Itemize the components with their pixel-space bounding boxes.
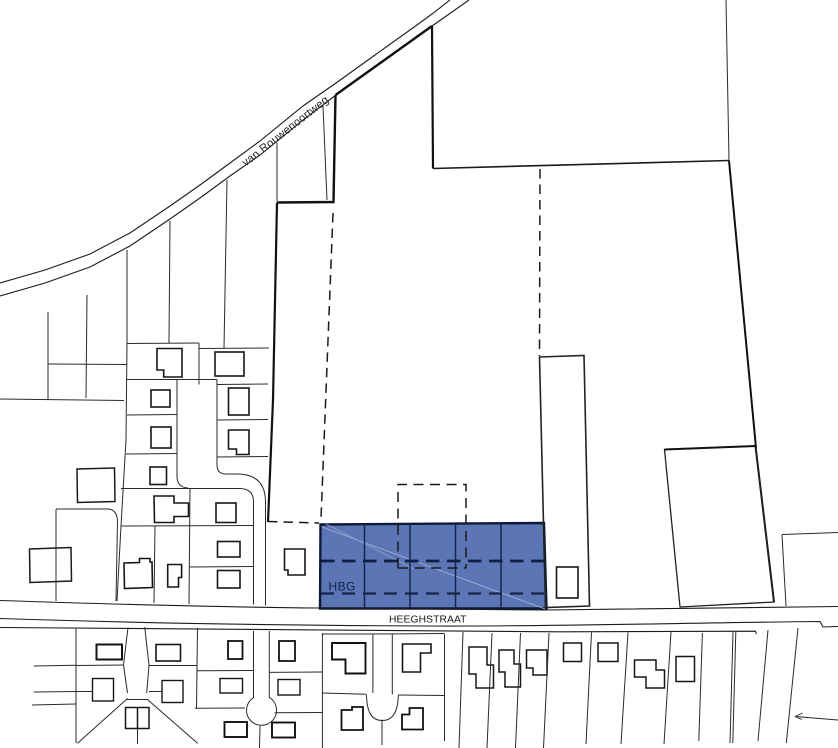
svg-text:HEEGHSTRAAT: HEEGHSTRAAT bbox=[389, 615, 467, 626]
svg-text:van Rouwenoortweg: van Rouwenoortweg bbox=[240, 94, 331, 169]
svg-text:HBG: HBG bbox=[329, 580, 356, 594]
